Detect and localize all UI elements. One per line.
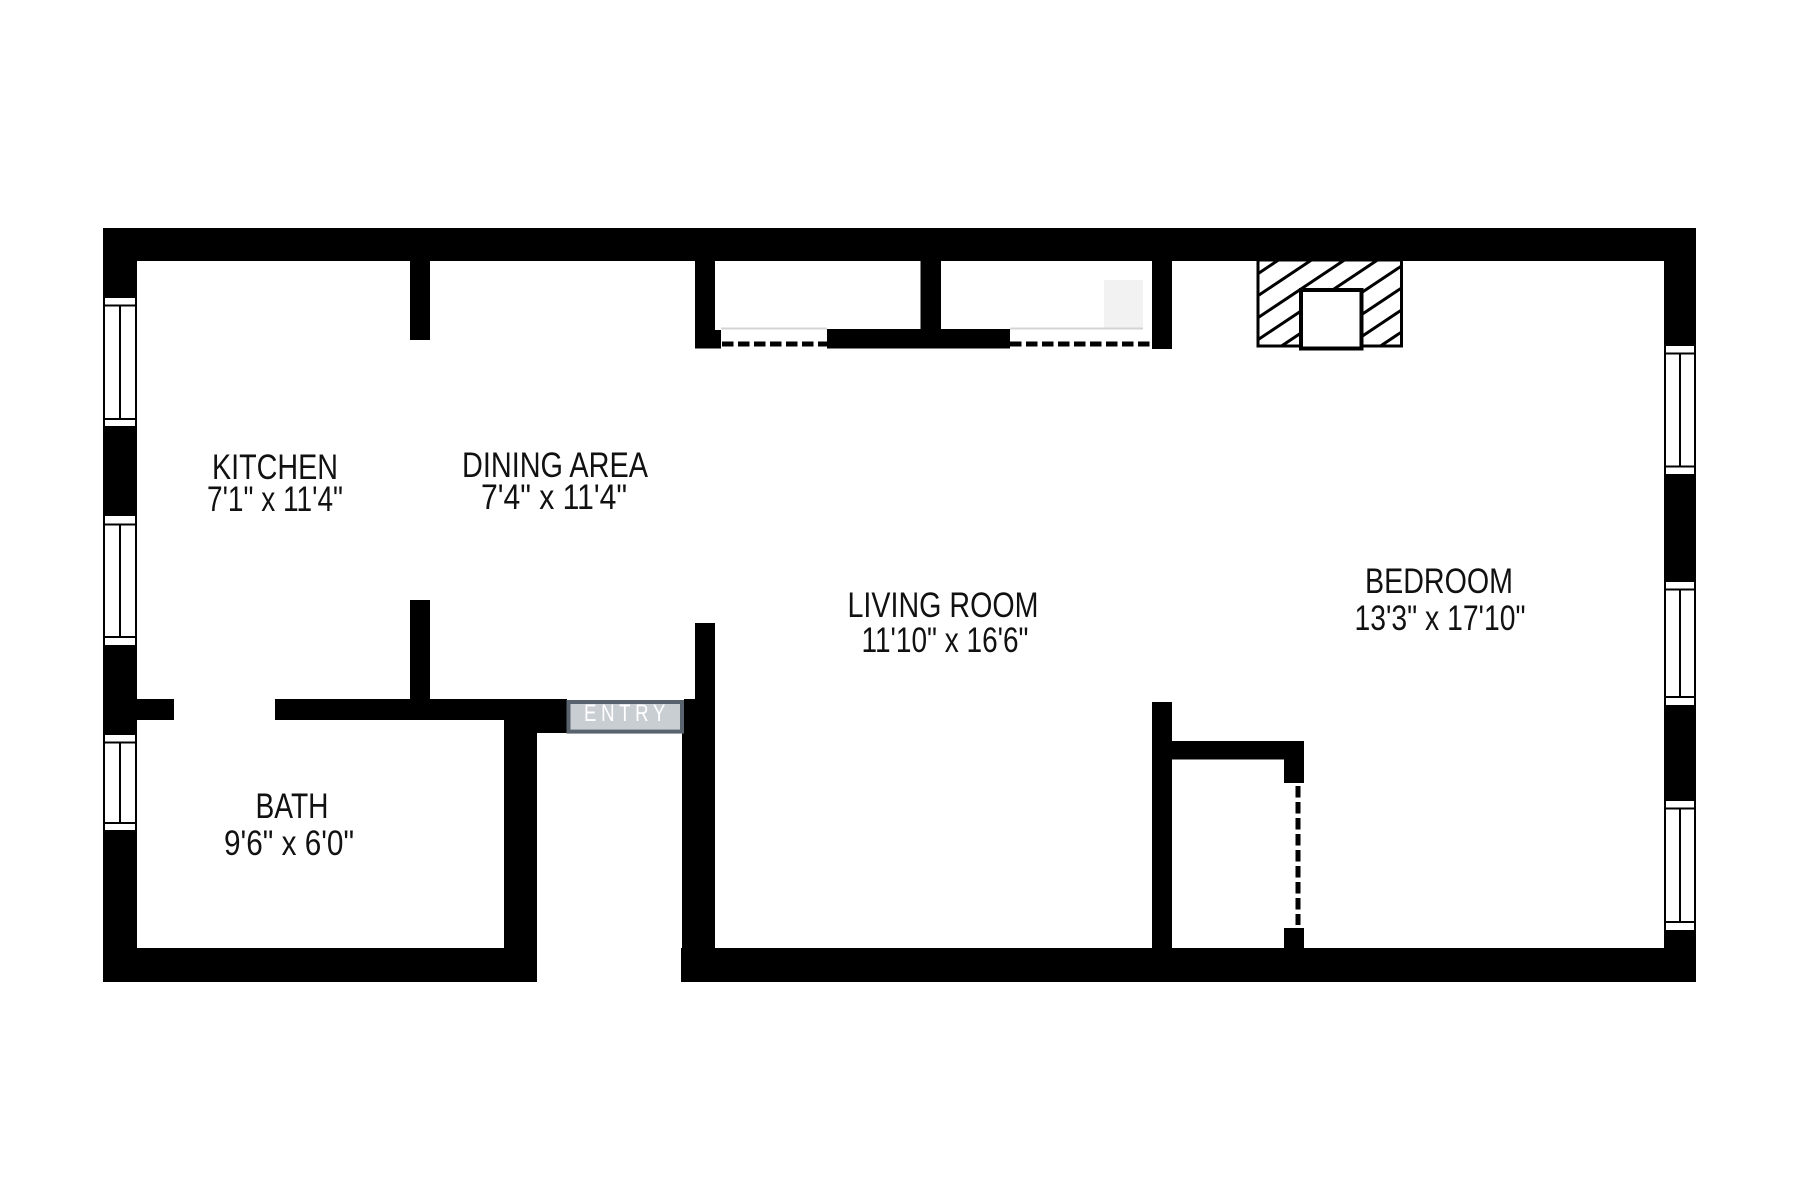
svg-text:LIVING ROOM: LIVING ROOM	[848, 586, 1039, 625]
svg-text:11'10" x 16'6": 11'10" x 16'6"	[862, 621, 1029, 660]
svg-text:7'1" x 11'4": 7'1" x 11'4"	[207, 480, 343, 519]
svg-text:ENTRY: ENTRY	[584, 700, 670, 727]
svg-text:13'3" x 17'10": 13'3" x 17'10"	[1355, 599, 1526, 638]
svg-text:9'6" x 6'0": 9'6" x 6'0"	[224, 824, 354, 863]
svg-text:7'4" x 11'4": 7'4" x 11'4"	[481, 478, 627, 517]
svg-text:BATH: BATH	[256, 787, 329, 826]
svg-text:BEDROOM: BEDROOM	[1365, 562, 1513, 601]
